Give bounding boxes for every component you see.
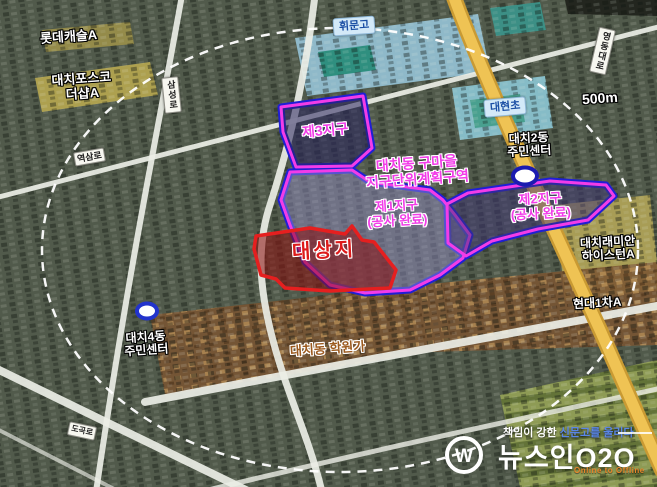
label-daehyun-elem: 대현초: [483, 96, 527, 118]
label-scale-500m: 500m: [581, 90, 618, 108]
label-hyundai1cha: 현대1차A: [573, 296, 622, 312]
label-daechi4-center: 대치4동 주민센터: [113, 329, 179, 360]
label-hwimun-high: 휘문고: [332, 16, 376, 37]
newsin-logo-letter: W: [455, 446, 473, 467]
label-daechi2-center: 대치2동 주민센터: [495, 130, 562, 160]
daechi2-center-marker: [513, 168, 537, 185]
newsin-logo-icon: W: [438, 433, 490, 477]
watermark-rule: [618, 432, 652, 434]
daechi4-center-marker: [137, 304, 157, 319]
label-zone2: 제2지구 (공사 완료): [497, 190, 583, 224]
label-zone1: 제1지구 (공사 완료): [351, 197, 442, 231]
watermark-subtitle: Online to Offline: [574, 466, 645, 475]
label-target-site: 대상지: [291, 238, 356, 264]
label-raemian: 대치래미안 하이스턴A: [569, 234, 646, 265]
label-road-samseongro: 삼성로: [161, 76, 182, 114]
label-posco-thesharp: 대치포스코 더샵A: [51, 70, 113, 103]
news-map-image: 롯데캐슬A 대치포스코 더샵A 삼성로 역삼로 휘문고 영동대로 500m 대현…: [0, 0, 657, 487]
